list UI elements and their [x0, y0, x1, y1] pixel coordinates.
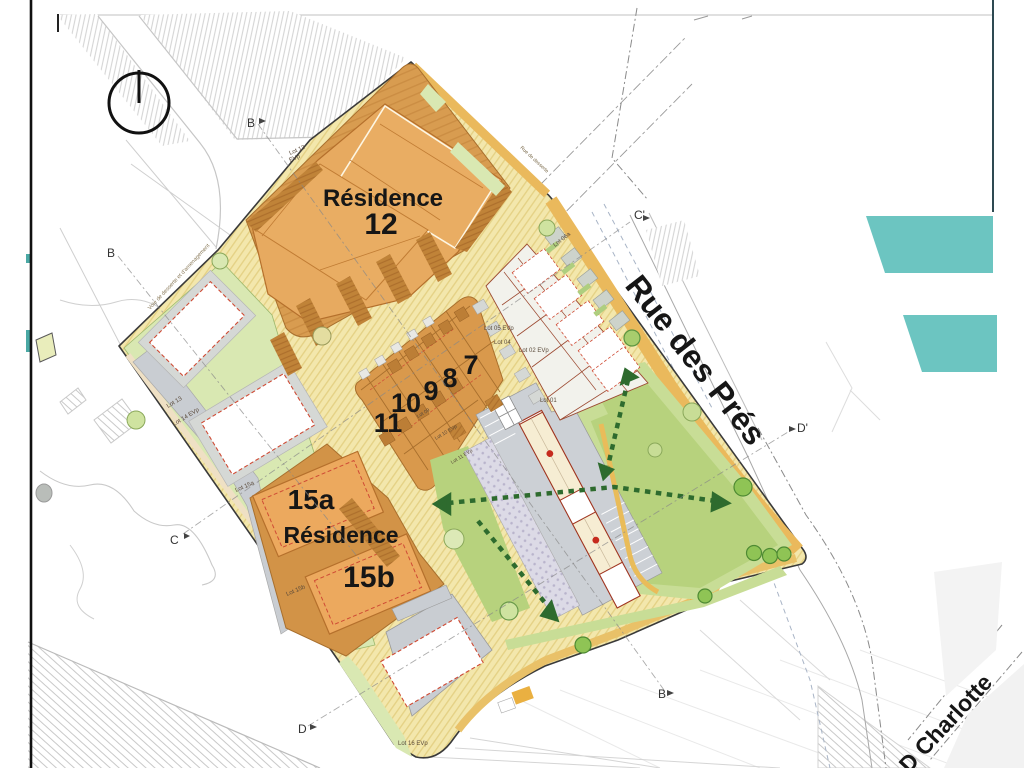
svg-text:D: D	[298, 722, 307, 736]
svg-text:B: B	[658, 687, 666, 701]
svg-text:C: C	[170, 533, 179, 547]
svg-text:Lot 16 EVp: Lot 16 EVp	[398, 741, 428, 747]
svg-text:9: 9	[423, 376, 438, 406]
svg-text:15a: 15a	[288, 484, 335, 515]
svg-text:B: B	[247, 116, 255, 130]
svg-text:C': C'	[634, 208, 645, 222]
svg-text:Résidence: Résidence	[283, 522, 398, 548]
svg-text:B: B	[107, 246, 115, 260]
svg-text:Lot 01: Lot 01	[540, 398, 557, 404]
svg-text:11: 11	[374, 408, 403, 438]
svg-text:Lot 05 EVp: Lot 05 EVp	[484, 326, 514, 332]
svg-text:Lot 02 EVp: Lot 02 EVp	[519, 348, 549, 354]
svg-text:15b: 15b	[343, 561, 395, 594]
svg-text:D': D'	[797, 421, 808, 435]
svg-text:Lot 04: Lot 04	[494, 340, 511, 346]
svg-text:8: 8	[442, 363, 457, 393]
svg-text:7: 7	[463, 350, 478, 380]
svg-text:12: 12	[364, 208, 397, 241]
